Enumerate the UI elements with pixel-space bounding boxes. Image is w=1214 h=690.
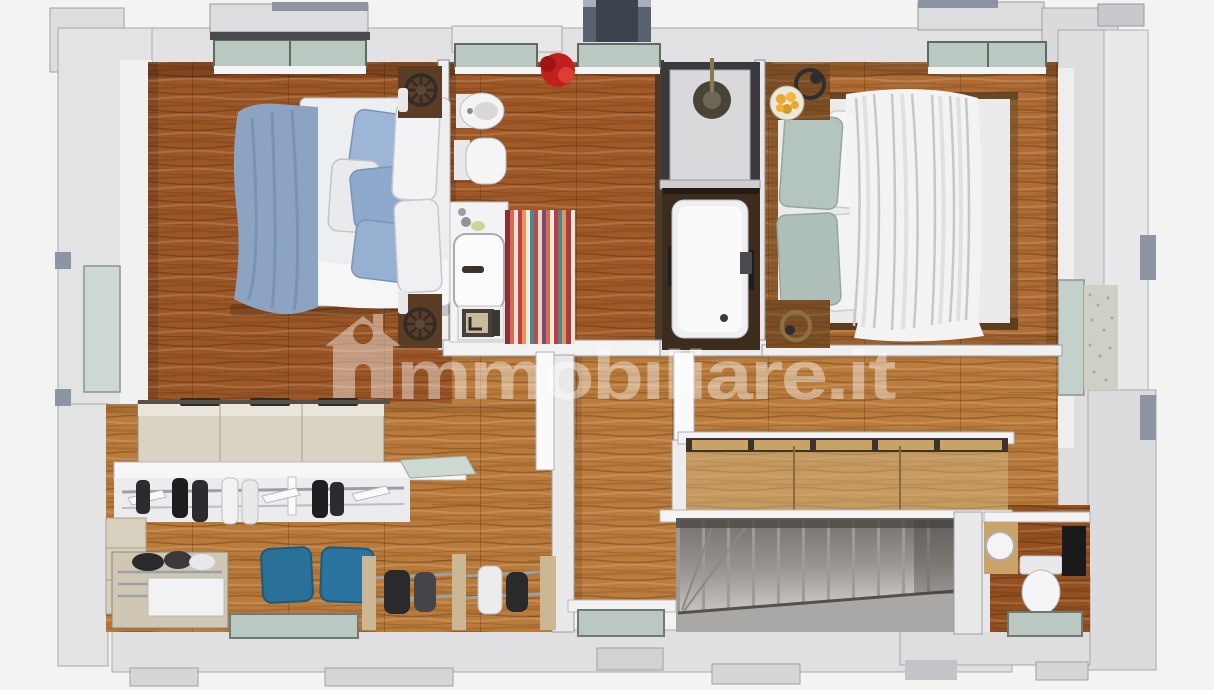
- svg-text:mmobiliare.it: mmobiliare.it: [396, 336, 896, 414]
